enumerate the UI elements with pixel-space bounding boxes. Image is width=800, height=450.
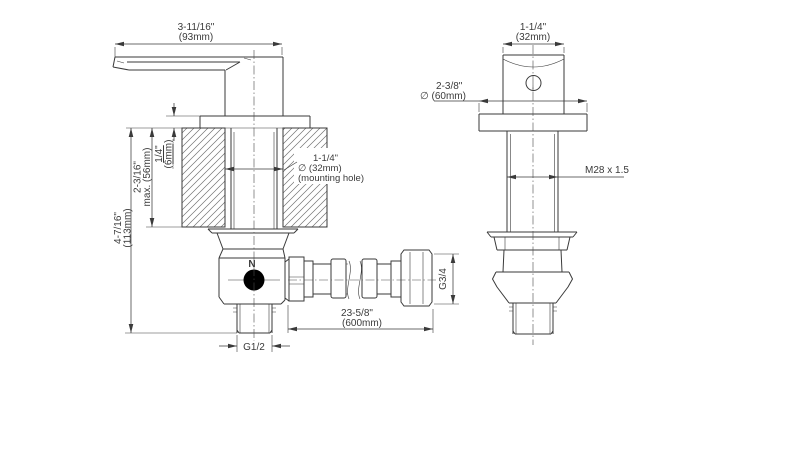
dim-deck-thickness-mm: max. (56mm) — [142, 148, 153, 207]
hose-end-nut — [401, 250, 432, 306]
outlet-g12 — [233, 304, 276, 333]
dim-plate-thickness-mm: (6mm) — [164, 140, 175, 169]
dim-install-depth-mm: (113mm) — [123, 208, 134, 247]
dim-install-depth: 4-7/16" (113mm) — [113, 128, 134, 333]
body-marker-label: N — [248, 259, 255, 270]
dim-hose-length-mm: (600mm) — [342, 318, 382, 329]
locknut-front — [494, 237, 570, 250]
technical-drawing-page: N — [0, 0, 800, 450]
dim-lever-width-mm: (93mm) — [179, 32, 213, 43]
flex-hose — [285, 250, 436, 306]
front-view — [479, 45, 587, 345]
dim-hose-nut-thread-label: G3/4 — [438, 268, 449, 290]
dim-lever-width: 3-11/16" (93mm) — [115, 22, 282, 57]
valve-body: N — [219, 249, 285, 304]
locknut — [217, 233, 289, 249]
dim-shank-thread: M28 x 1.5 — [507, 165, 629, 177]
lever-handle — [113, 57, 283, 116]
handle-button — [526, 76, 541, 91]
dim-hose-length: 23-5/8" (600mm) — [288, 305, 433, 333]
side-view: N — [113, 50, 436, 341]
washer-front — [487, 232, 577, 237]
handle-front — [503, 55, 564, 114]
dim-handle-width-mm: (32mm) — [516, 32, 550, 43]
dim-handle-width: 1-1/4" (32mm) — [503, 22, 564, 53]
dim-outlet-thread: G1/2 — [219, 335, 290, 353]
escutcheon-plate — [166, 116, 310, 128]
valve-body-front — [493, 250, 573, 303]
dim-outlet-thread-label: G1/2 — [243, 342, 265, 353]
faucet-dimension-drawing: N — [0, 0, 800, 450]
washer — [208, 229, 298, 233]
dim-deck-thickness: 2-3/16" max. (56mm) — [133, 128, 154, 227]
dim-mounting-hole-note: (mounting hole) — [298, 173, 364, 184]
dim-shank-thread-label: M28 x 1.5 — [585, 165, 629, 176]
dim-escutcheon-mm: ∅ (60mm) — [420, 91, 466, 102]
dim-plate-thickness: 1/4" (6mm) — [154, 103, 175, 168]
threaded-shank — [507, 131, 558, 232]
dim-hose-nut-thread: G3/4 — [434, 254, 459, 304]
